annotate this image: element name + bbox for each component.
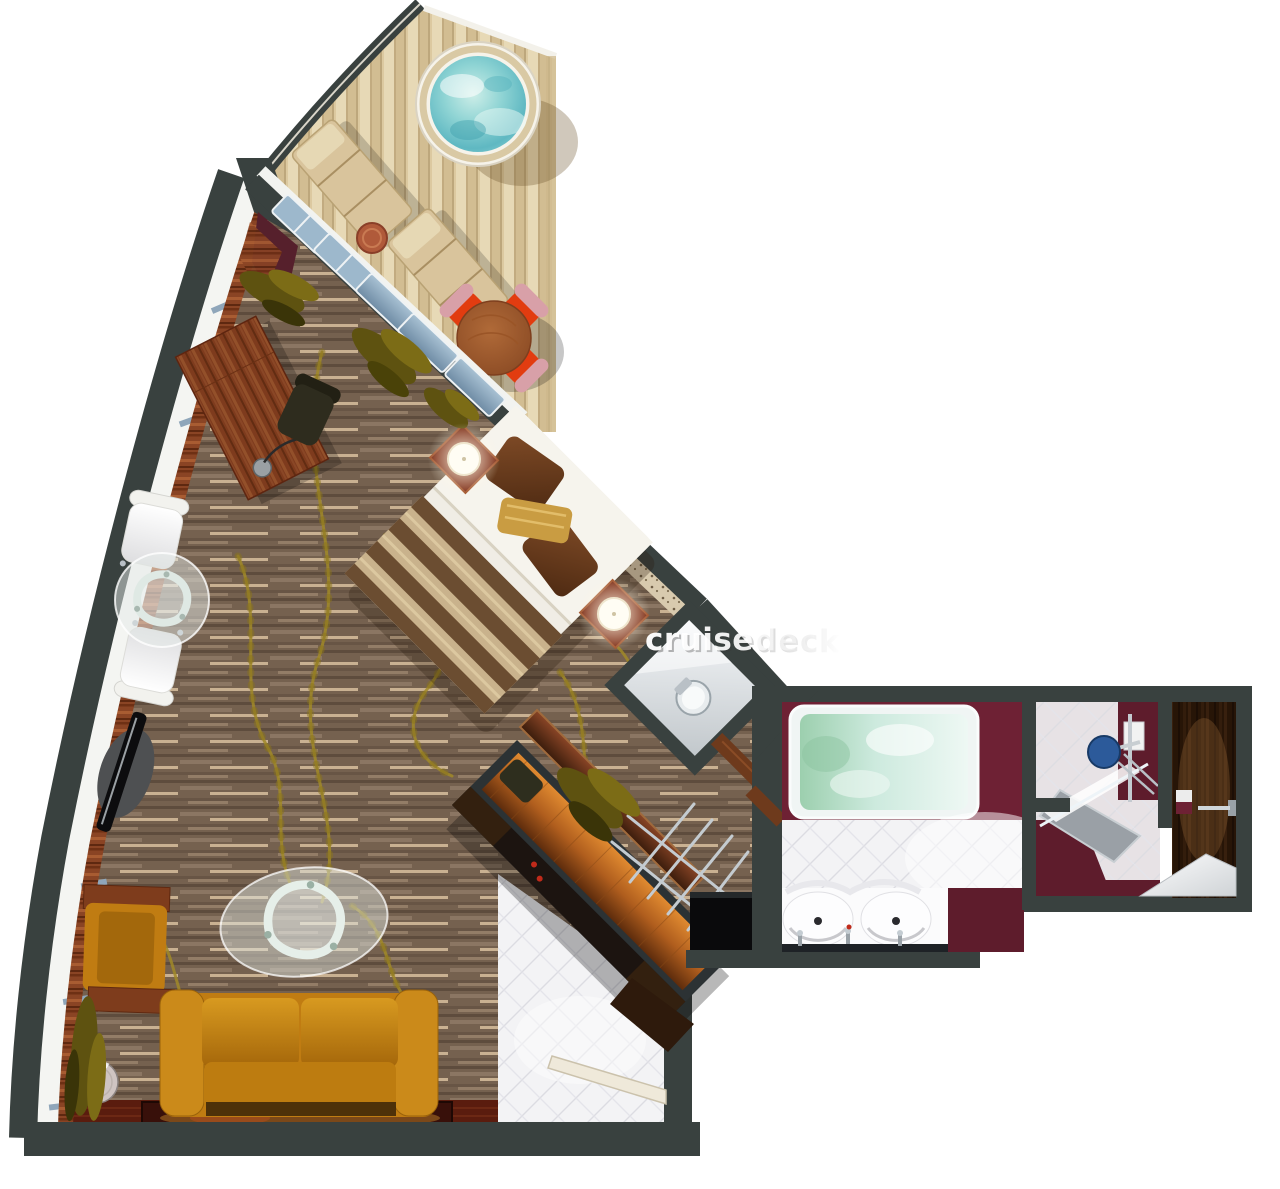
- hot-tub: [416, 42, 540, 166]
- balcony-side-table: [357, 223, 387, 253]
- sofa: [160, 990, 438, 1117]
- shower-head: [1088, 736, 1120, 768]
- watermark-text: cruisedeck: [645, 622, 839, 658]
- armchair: [80, 885, 178, 1014]
- bathroom-bottom-wall: [686, 950, 978, 968]
- glass-table: [115, 553, 209, 647]
- door-plate: [1176, 790, 1192, 804]
- double-vanity: [782, 882, 948, 952]
- watermark: cruisedeck cruisedeck: [645, 622, 841, 660]
- vestibule-divider: [1158, 702, 1172, 828]
- whirlpool-bath: [790, 706, 978, 818]
- floorplan-page: cruisedeck cruisedeck: [0, 0, 1280, 1189]
- suite-floorplan: cruisedeck cruisedeck: [0, 0, 1280, 1189]
- bathroom-right-wall: [1236, 686, 1252, 912]
- bottom-wall: [24, 1122, 700, 1156]
- bathroom-top-wall: [752, 686, 1252, 704]
- shower-unit: [1022, 702, 1160, 896]
